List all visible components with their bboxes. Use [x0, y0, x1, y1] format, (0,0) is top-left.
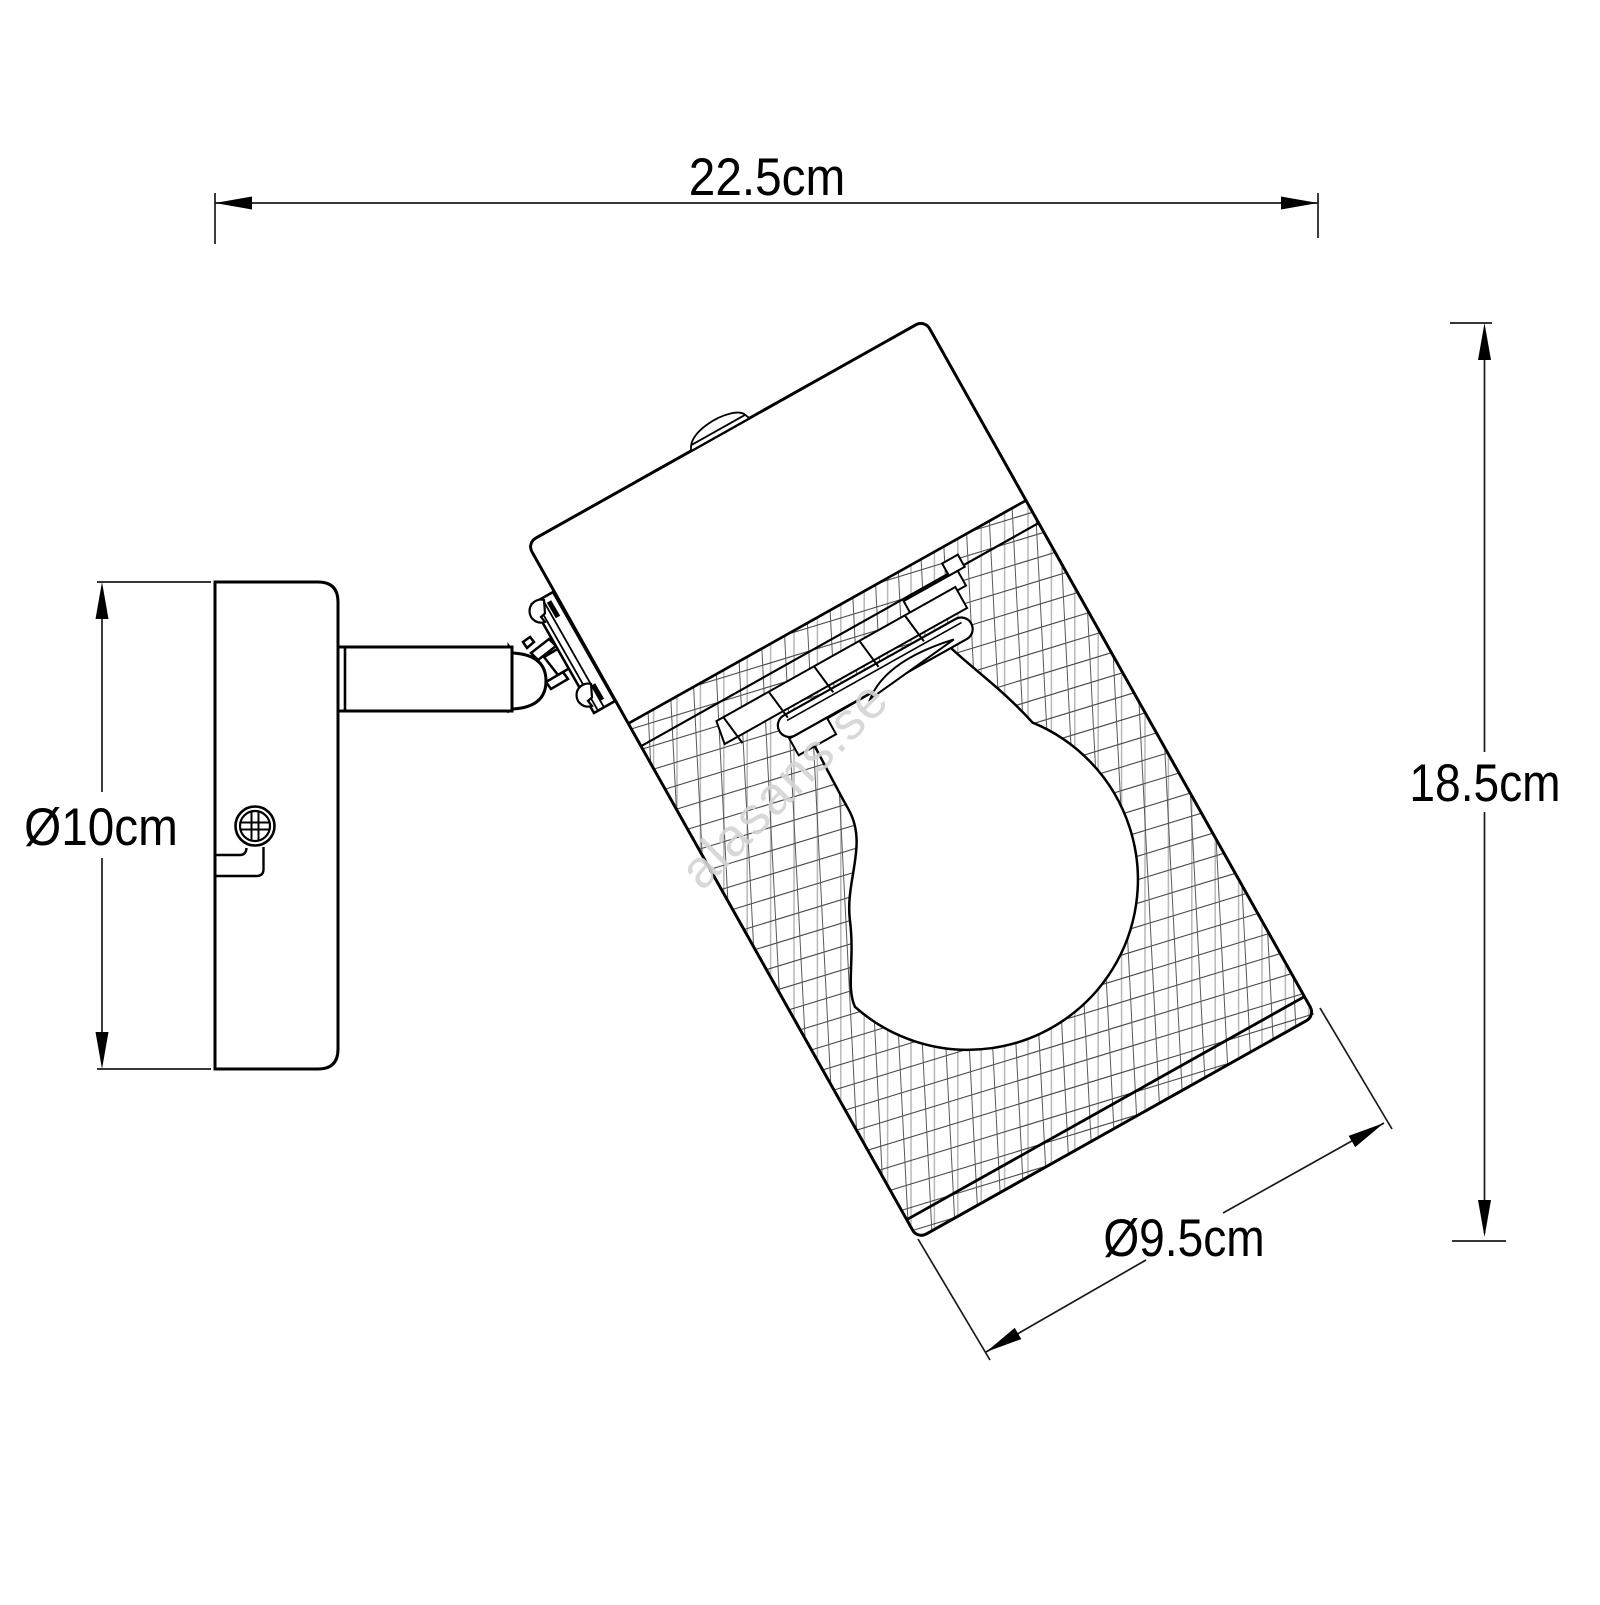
svg-text:Ø10cm: Ø10cm — [24, 797, 178, 857]
svg-text:22.5cm: 22.5cm — [689, 147, 845, 207]
svg-text:Ø9.5cm: Ø9.5cm — [1103, 1208, 1264, 1268]
svg-text:18.5cm: 18.5cm — [1409, 753, 1560, 813]
